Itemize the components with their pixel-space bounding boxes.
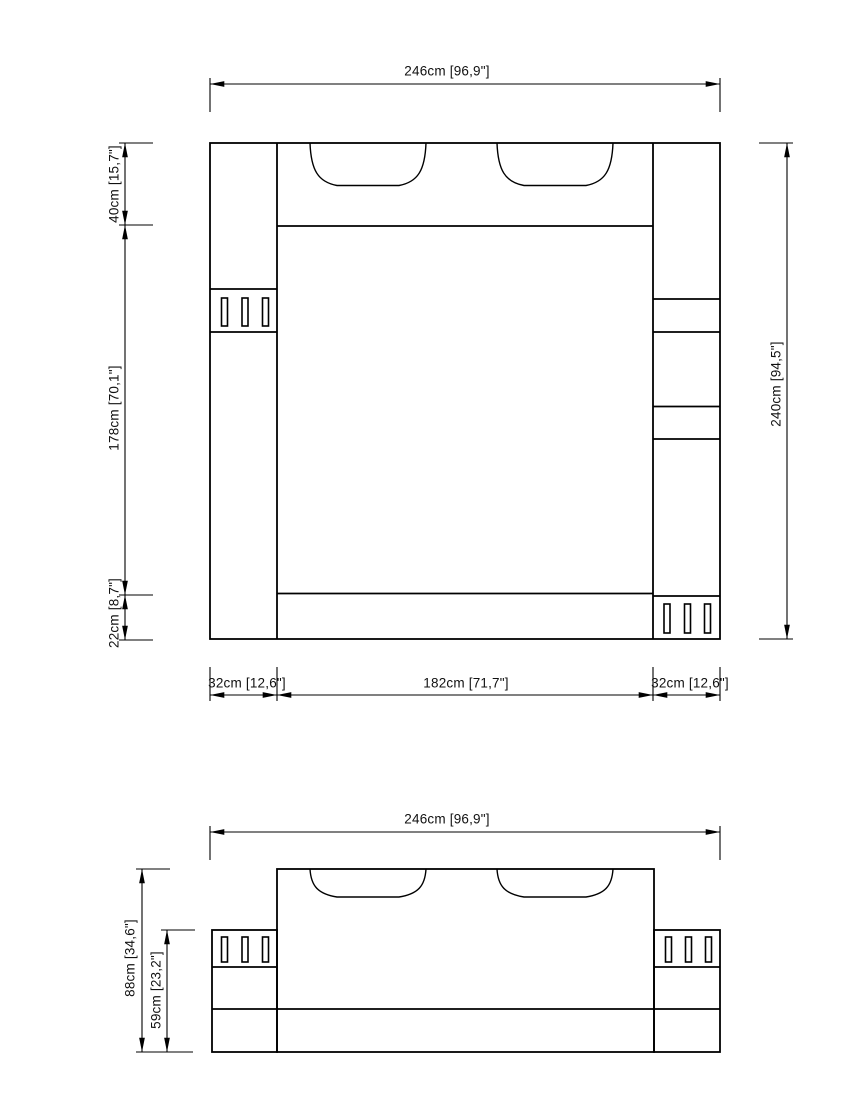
front-view-overall-width-label: 246cm [96,9"]	[404, 812, 489, 827]
top-view-dimensions	[119, 78, 793, 701]
right-cabinet	[654, 930, 720, 1052]
left-vent-slats	[222, 298, 269, 326]
top-view-overall-width-label: 246cm [96,9"]	[404, 64, 489, 79]
front-view-base-height-label: 59cm [23,2"]	[149, 951, 164, 1029]
top-view-outer-frame	[210, 143, 720, 639]
front-view-dimensions	[136, 826, 720, 1052]
front-right-pillow	[497, 869, 613, 897]
top-view-overall-depth-label: 240cm [94,5"]	[769, 341, 784, 426]
front-view	[212, 869, 720, 1052]
top-view-bed-width-label: 182cm [71,7"]	[423, 676, 508, 691]
front-view-overall-height-label: 88cm [34,6"]	[123, 919, 138, 997]
top-view-left-cabinet-width-label: 32cm [12,6"]	[208, 676, 286, 691]
top-view	[210, 143, 720, 639]
top-view-headboard-depth-label: 40cm [15,7"]	[107, 145, 122, 223]
right-vent-slats	[664, 604, 711, 633]
front-left-pillow	[310, 869, 426, 897]
technical-drawing-page: 246cm [96,9"] 40cm [15,7"] 178cm [70,1"]…	[0, 0, 860, 1102]
right-pillow	[497, 143, 613, 186]
front-left-vent-slats	[222, 937, 269, 962]
top-view-footboard-depth-label: 22cm [8,7"]	[107, 578, 122, 648]
front-right-vent-slats	[666, 937, 712, 962]
top-view-bed-length-label: 178cm [70,1"]	[107, 365, 122, 450]
pillow-outlines-front	[310, 869, 613, 897]
top-view-right-cabinet-width-label: 32cm [12,6"]	[651, 676, 729, 691]
left-pillow	[310, 143, 426, 186]
pillow-outlines-top	[310, 143, 613, 186]
